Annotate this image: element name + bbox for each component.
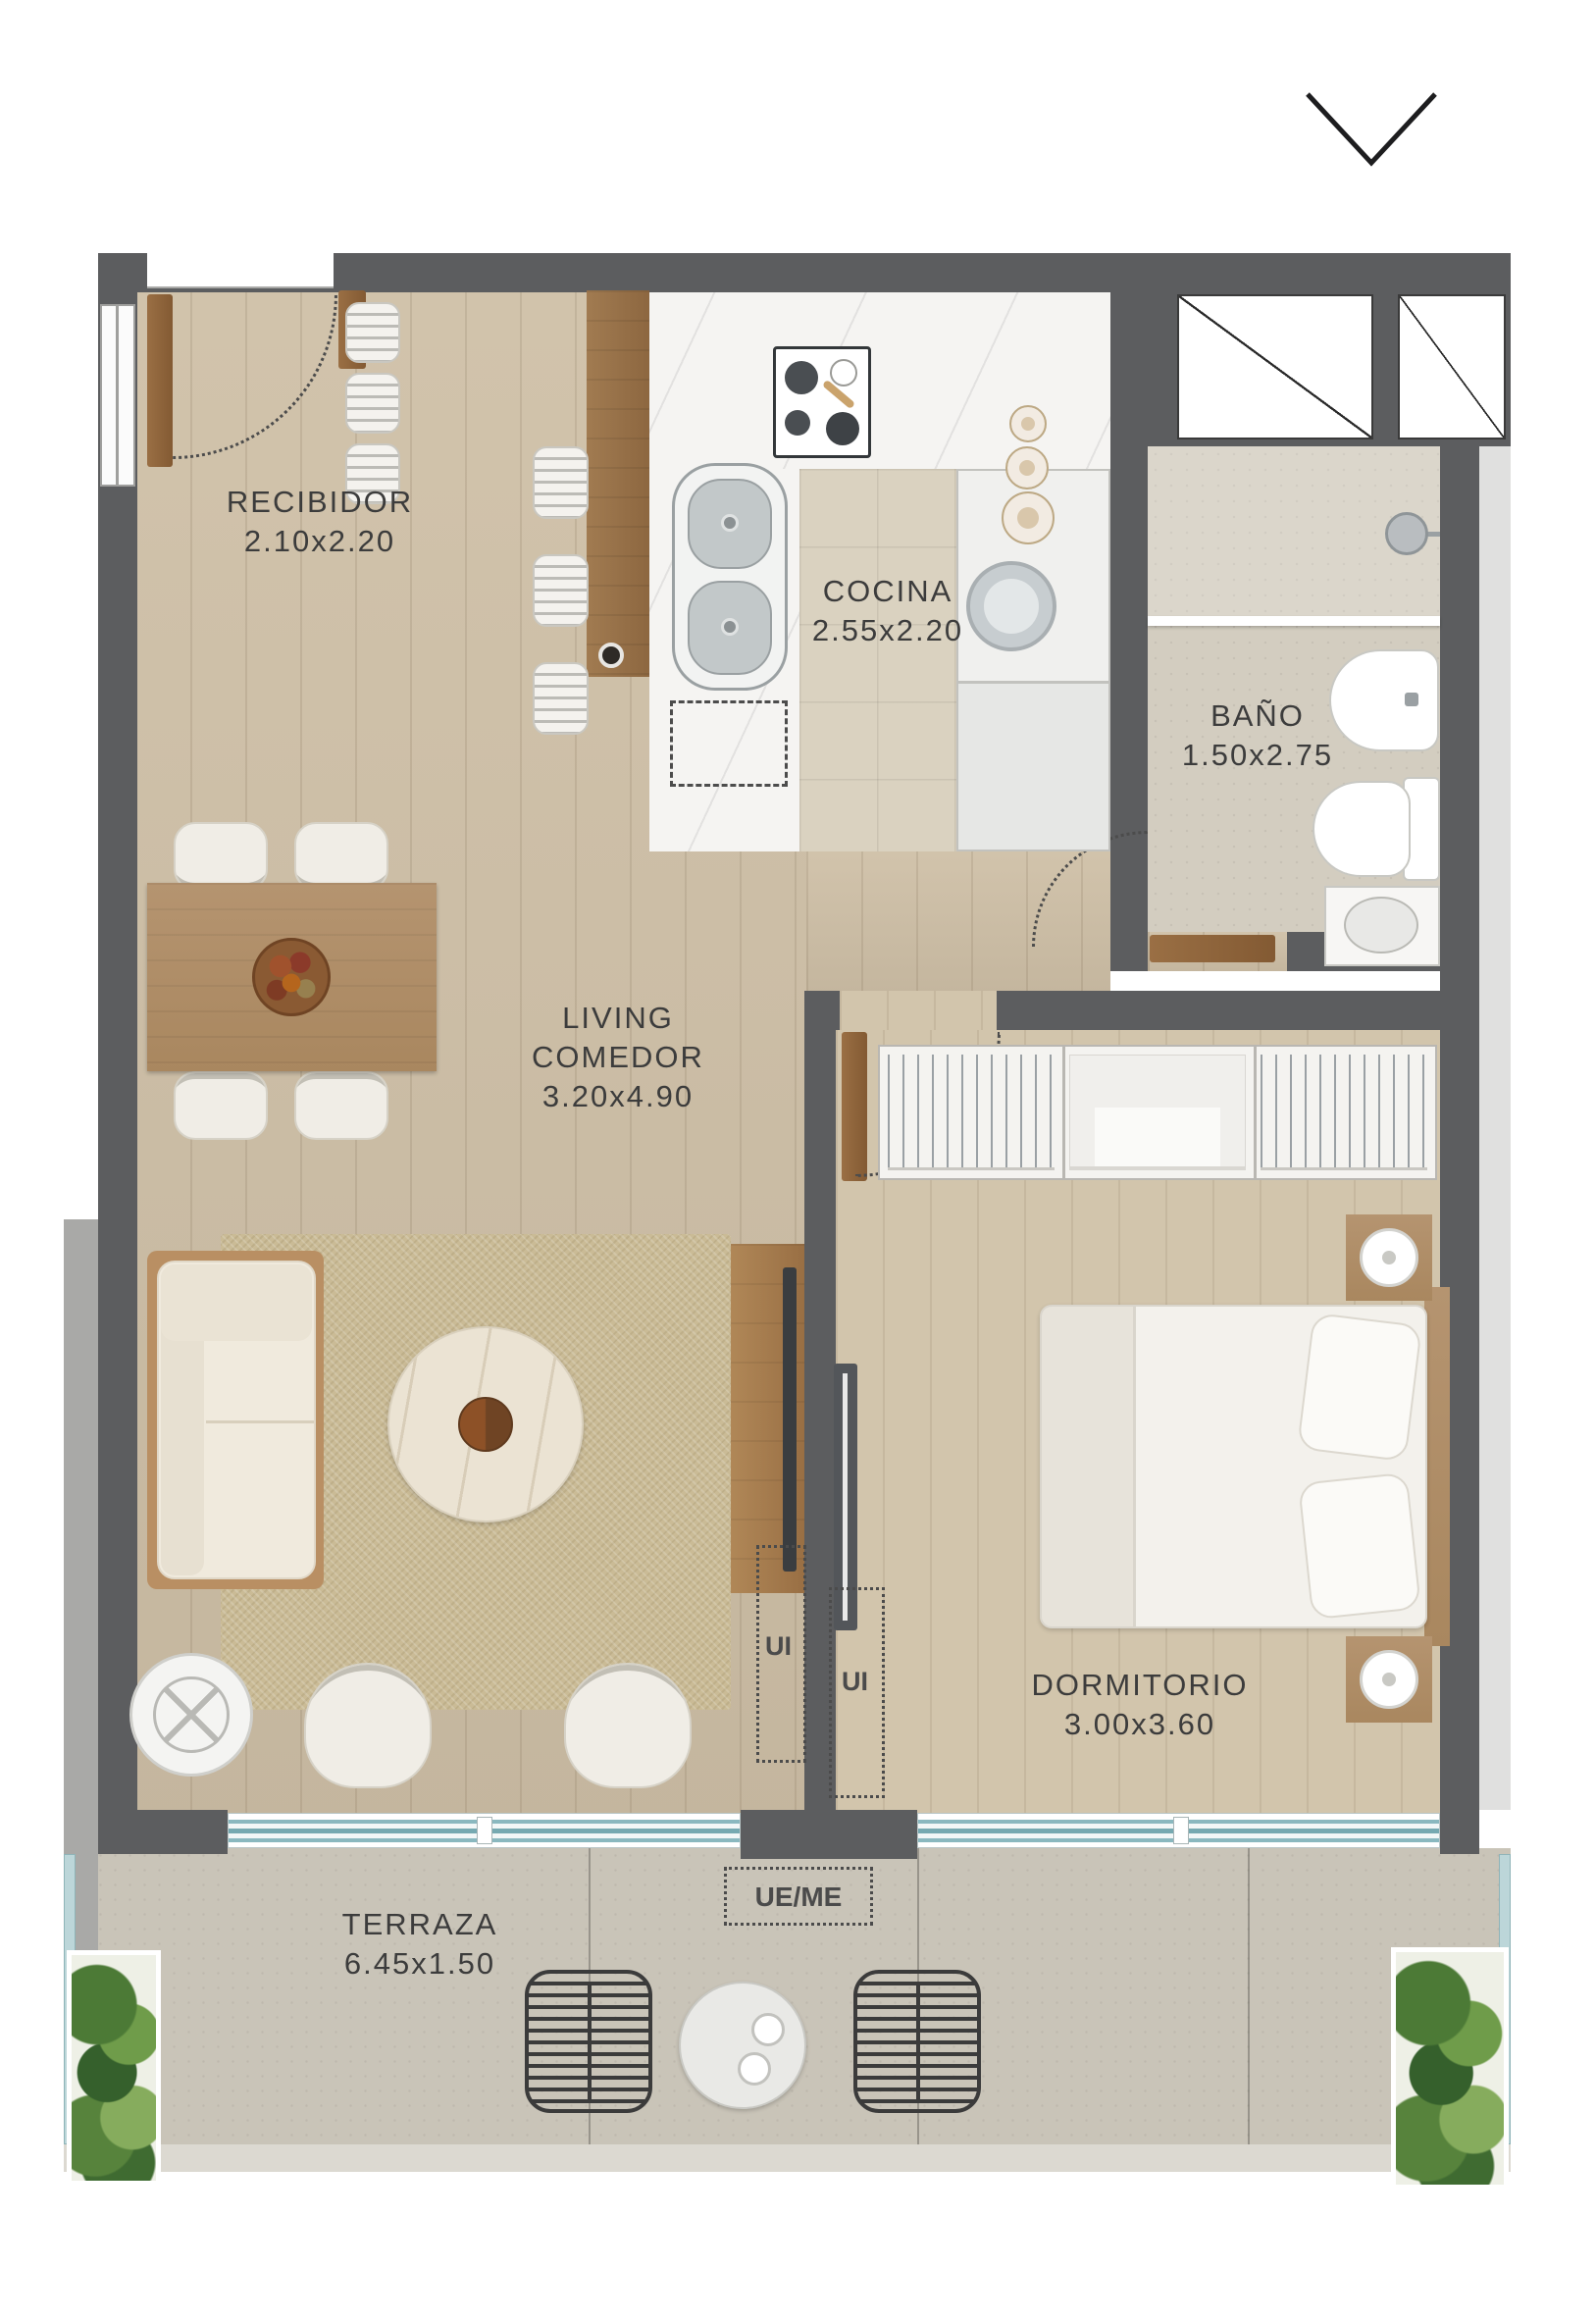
terrace-cup-1 [751, 2013, 785, 2046]
kitchen-bar-counter [587, 290, 649, 677]
wardrobe-hangers-right [1261, 1055, 1427, 1170]
sofa-arm-cushion [161, 1264, 312, 1341]
stove-burner-3 [785, 410, 810, 436]
room-dims-cocina: 2.55x2.20 [741, 611, 1035, 650]
wardrobe-hangers-left [888, 1055, 1055, 1170]
terrace-slab-edge [64, 2144, 1511, 2172]
room-name-dormitorio: DORMITORIO [963, 1666, 1316, 1705]
room-dims-bano: 1.50x2.75 [1110, 736, 1405, 775]
kitchen-bar-knob [598, 643, 624, 668]
wall-south-stub-left [137, 1810, 228, 1854]
dining-chair-1 [174, 822, 268, 891]
terrace-table [679, 1982, 806, 2109]
shaft-duct-1 [1177, 294, 1373, 439]
planter-right [1391, 1947, 1509, 2190]
dining-chair-2 [294, 822, 388, 891]
recibidor-window-frame [116, 306, 119, 485]
room-label-living: LIVING COMEDOR 3.20x4.90 [461, 999, 775, 1116]
chevron-down-icon[interactable] [1300, 86, 1443, 177]
shower-head [1385, 512, 1428, 555]
terrace-chair-2-spine [916, 1982, 920, 2101]
bar-stool-2 [533, 554, 589, 627]
room-name-living: LIVING [461, 999, 775, 1038]
ui-marker-living-label: UI [765, 1631, 792, 1662]
window-living-mullion [477, 1817, 492, 1844]
terrace-chair-2 [853, 1970, 981, 2113]
nightstand-lamp-1 [1360, 1228, 1418, 1287]
bar-stool-1 [533, 446, 589, 519]
room-dims-terraza: 6.45x1.50 [263, 1944, 577, 1984]
dishwasher-outline [670, 700, 788, 787]
room-name-bano: BAÑO [1110, 696, 1405, 736]
tv [783, 1267, 797, 1572]
coffee-table-bowl [458, 1397, 513, 1452]
bath-door-leaf [1150, 935, 1275, 962]
counter-bowl-1 [1009, 405, 1047, 442]
wardrobe-divider-2 [1254, 1045, 1257, 1180]
room-name-living-2: COMEDOR [461, 1038, 775, 1077]
floorplan-page: UI UI UE/ME RECIBIDOR 2.10x2.20 COCINA 2… [0, 0, 1596, 2320]
ue-me-marker-label: UE/ME [727, 1870, 870, 1925]
refrigerator [958, 684, 1108, 850]
entry-landing [147, 253, 334, 288]
ui-marker-dorm-box: UI [829, 1587, 885, 1798]
shaft-duct-2 [1398, 294, 1506, 439]
stove-burner-4 [826, 412, 859, 445]
vanity-sink [1344, 897, 1418, 954]
bidet-tap [1405, 693, 1418, 706]
room-label-recibidor: RECIBIDOR 2.10x2.20 [173, 483, 467, 561]
window-dorm-mullion [1173, 1817, 1189, 1844]
counter-bowl-3 [1002, 491, 1055, 544]
wardrobe-divider-1 [1062, 1045, 1065, 1180]
room-label-dormitorio: DORMITORIO 3.00x3.60 [963, 1666, 1316, 1744]
wall-south-stub-mid [741, 1810, 917, 1859]
wall-left [98, 253, 137, 1854]
exterior-wall-right [1479, 446, 1511, 1810]
sofa-seat-seam [206, 1420, 314, 1423]
room-label-terraza: TERRAZA 6.45x1.50 [263, 1905, 577, 1984]
headboard [1424, 1287, 1450, 1646]
shower-screen [1148, 616, 1440, 626]
armchair-1 [304, 1663, 432, 1788]
terrace-cup-2 [738, 2052, 771, 2086]
planter-left [67, 1950, 161, 2186]
dorm-sliding-door-handle [843, 1373, 848, 1621]
nightstand-lamp-2 [1360, 1650, 1418, 1709]
fruit-bowl [252, 938, 331, 1016]
wardrobe-shelves-mid [1069, 1055, 1246, 1170]
armchair-2 [564, 1663, 692, 1788]
ue-me-marker-box: UE/ME [724, 1867, 873, 1926]
sink-drain-1 [721, 514, 739, 532]
entry-shelf-1 [345, 302, 400, 363]
dining-chair-3 [174, 1071, 268, 1140]
stove-burner-1 [785, 361, 818, 394]
room-name-terraza: TERRAZA [263, 1905, 577, 1944]
pillow-1 [1297, 1313, 1422, 1463]
room-dims-recibidor: 2.10x2.20 [173, 522, 467, 561]
dorm-door-opening [840, 991, 997, 1030]
terrace-joint-3 [1248, 1848, 1250, 2144]
ui-marker-dorm-label: UI [842, 1667, 868, 1697]
bar-stool-3 [533, 662, 589, 735]
terrace-chair-1 [525, 1970, 652, 2113]
terrace-chair-1-spine [588, 1982, 592, 2101]
dining-chair-4 [294, 1071, 388, 1140]
room-dims-dormitorio: 3.00x3.60 [963, 1705, 1316, 1744]
sink-drain-2 [721, 618, 739, 636]
ui-marker-living-box: UI [756, 1545, 806, 1763]
counter-bowl-2 [1005, 446, 1049, 490]
stove [773, 346, 871, 458]
room-label-bano: BAÑO 1.50x2.75 [1110, 696, 1405, 775]
room-label-cocina: COCINA 2.55x2.20 [741, 572, 1035, 650]
room-name-recibidor: RECIBIDOR [173, 483, 467, 522]
entry-door-leaf [147, 294, 173, 467]
pillow-2 [1298, 1472, 1421, 1621]
room-dims-living: 3.20x4.90 [461, 1077, 775, 1116]
stove-burner-2 [830, 359, 857, 387]
entry-shelf-2 [345, 373, 400, 434]
side-table-frame [153, 1676, 230, 1753]
kitchen-counter-top [649, 290, 1110, 469]
bed-fold-line [1133, 1307, 1136, 1626]
toilet-bowl [1313, 781, 1411, 877]
room-name-cocina: COCINA [741, 572, 1035, 611]
